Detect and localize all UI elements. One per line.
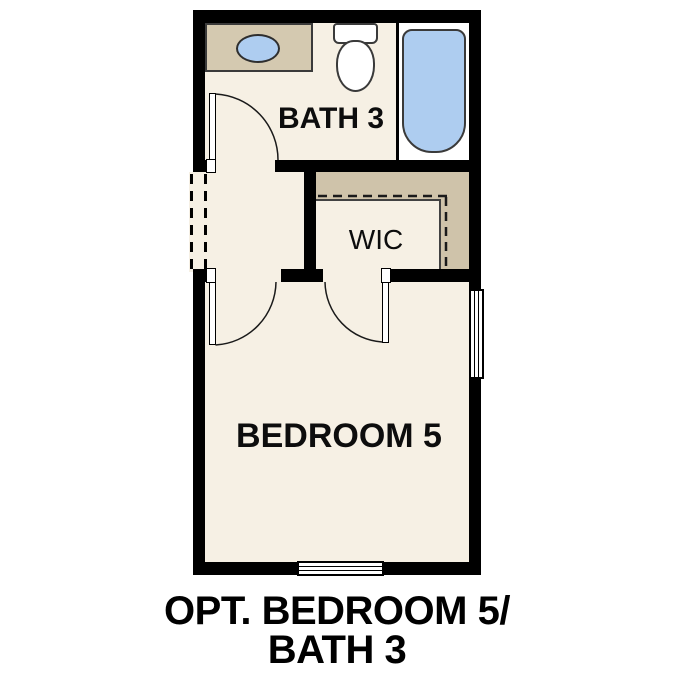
plan-caption: OPT. BEDROOM 5/ BATH 3 xyxy=(0,592,674,670)
wall-bedroom-north-right xyxy=(386,269,469,282)
wall-top xyxy=(193,10,481,23)
sink-fixture xyxy=(236,34,280,63)
plan-caption-line1: OPT. BEDROOM 5/ xyxy=(0,592,674,631)
hall-opening-floor xyxy=(189,172,205,272)
bedroom-door-jamb xyxy=(206,268,216,283)
wic-door-leaf xyxy=(382,282,389,343)
wall-wic-west xyxy=(304,162,316,281)
floorplan-page: { "floorplan": { "rooms": { "bath": { "l… xyxy=(0,0,687,687)
bath-door-leaf xyxy=(209,93,216,160)
bedroom-room-label: BEDROOM 5 xyxy=(189,417,489,456)
bedroom-door-leaf xyxy=(209,282,216,345)
plan-caption-line2: BATH 3 xyxy=(0,631,674,670)
bedroom-window-bottom-pane xyxy=(299,566,382,571)
bath-door-jamb xyxy=(206,159,216,173)
wic-room-label: WIC xyxy=(326,224,426,256)
wic-door-jamb xyxy=(381,268,391,283)
wall-bedroom-north-mid xyxy=(281,269,323,282)
bedroom-window-right-pane xyxy=(474,291,479,377)
wall-tub-divider xyxy=(396,23,399,160)
bath-room-label: BATH 3 xyxy=(231,102,431,136)
toilet-bowl xyxy=(336,40,375,92)
wall-left-upper xyxy=(193,10,205,172)
